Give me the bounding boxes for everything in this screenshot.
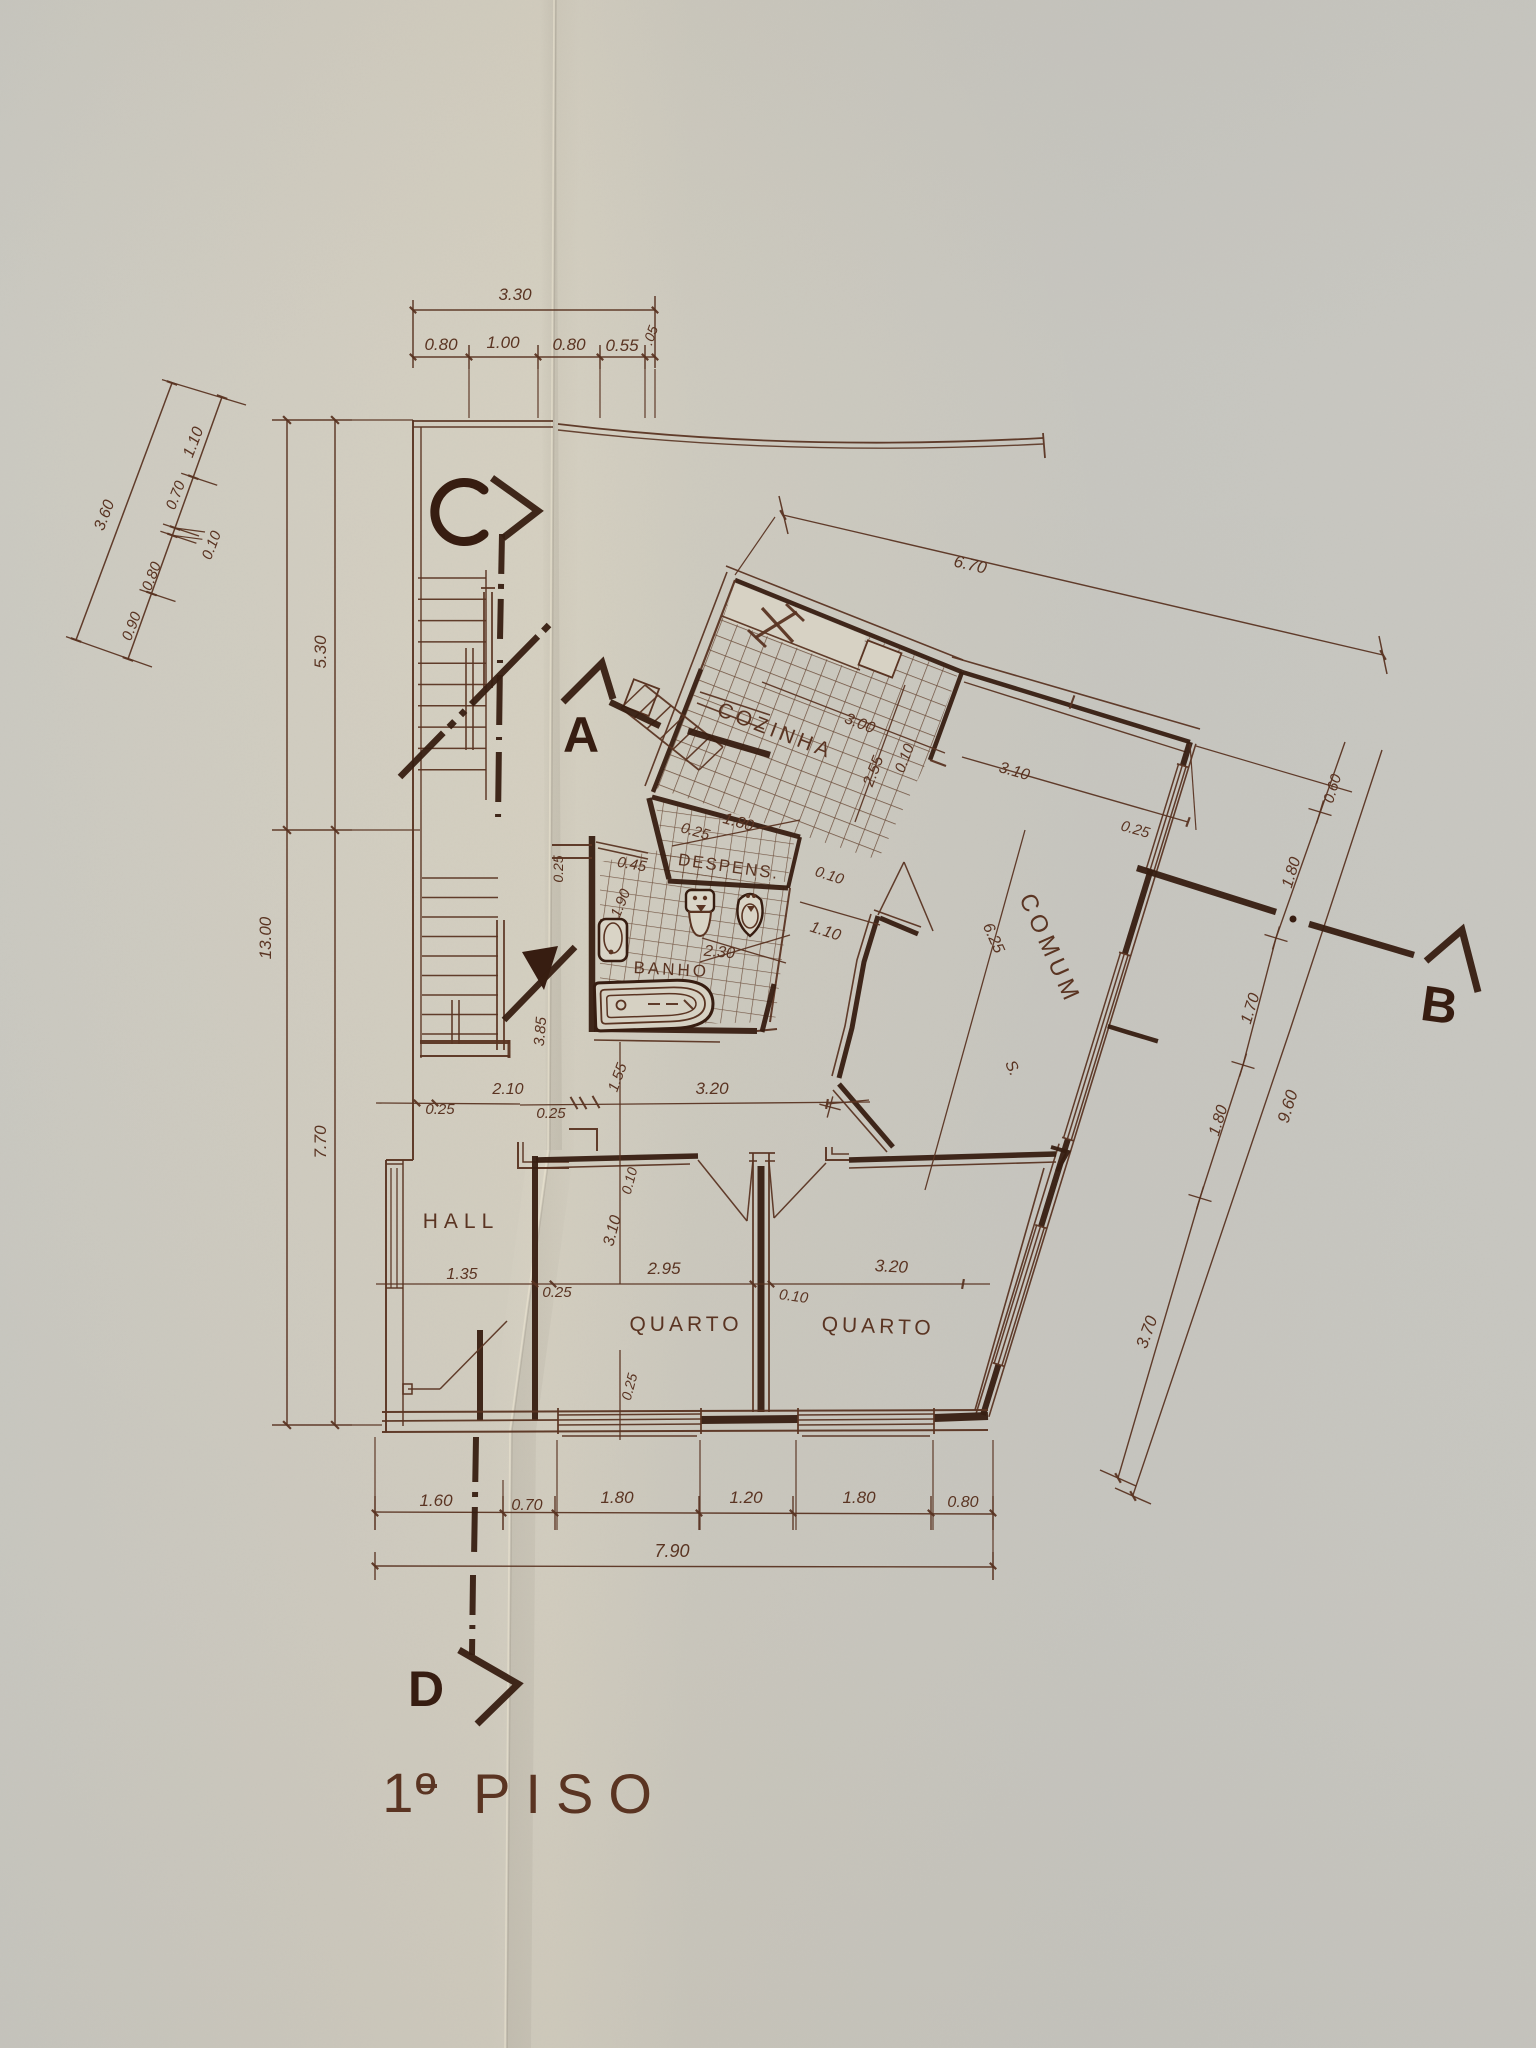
svg-text:3.85: 3.85 (531, 1016, 551, 1047)
svg-text:1.35: 1.35 (446, 1266, 477, 1283)
svg-text:0.70: 0.70 (511, 1497, 542, 1514)
svg-text:7.70: 7.70 (311, 1125, 330, 1159)
svg-text:2.95: 2.95 (646, 1259, 681, 1278)
svg-text:D: D (408, 1661, 444, 1717)
svg-text:B: B (1418, 975, 1462, 1035)
svg-text:QUARTO: QUARTO (629, 1313, 742, 1336)
svg-text:3.20: 3.20 (874, 1256, 909, 1277)
svg-text:0.25: 0.25 (542, 1284, 572, 1301)
svg-text:1.60: 1.60 (419, 1491, 453, 1510)
svg-text:1º: 1º (382, 1761, 438, 1824)
svg-text:0.80: 0.80 (947, 1494, 978, 1511)
svg-text:PISO: PISO (473, 1762, 667, 1825)
svg-text:1.80: 1.80 (600, 1488, 634, 1507)
svg-text:3.30: 3.30 (498, 285, 532, 304)
svg-text:HALL: HALL (423, 1210, 500, 1233)
svg-text:A: A (563, 707, 599, 763)
svg-text:QUARTO: QUARTO (821, 1313, 935, 1340)
svg-text:1.00: 1.00 (486, 333, 520, 352)
svg-text:7.90: 7.90 (654, 1541, 689, 1561)
svg-text:1.80: 1.80 (842, 1488, 876, 1507)
svg-text:0.55: 0.55 (605, 336, 639, 355)
svg-text:0.80: 0.80 (552, 335, 586, 354)
svg-text:3.20: 3.20 (695, 1079, 729, 1098)
svg-text:0.25: 0.25 (536, 1105, 566, 1122)
svg-text:BANHO: BANHO (633, 958, 709, 981)
svg-text:0.25: 0.25 (550, 855, 566, 882)
svg-text:2.10: 2.10 (491, 1081, 523, 1098)
svg-text:1.20: 1.20 (729, 1488, 763, 1507)
svg-text:0.80: 0.80 (424, 335, 458, 354)
svg-text:13.00: 13.00 (256, 916, 275, 959)
svg-text:5.30: 5.30 (311, 635, 330, 669)
